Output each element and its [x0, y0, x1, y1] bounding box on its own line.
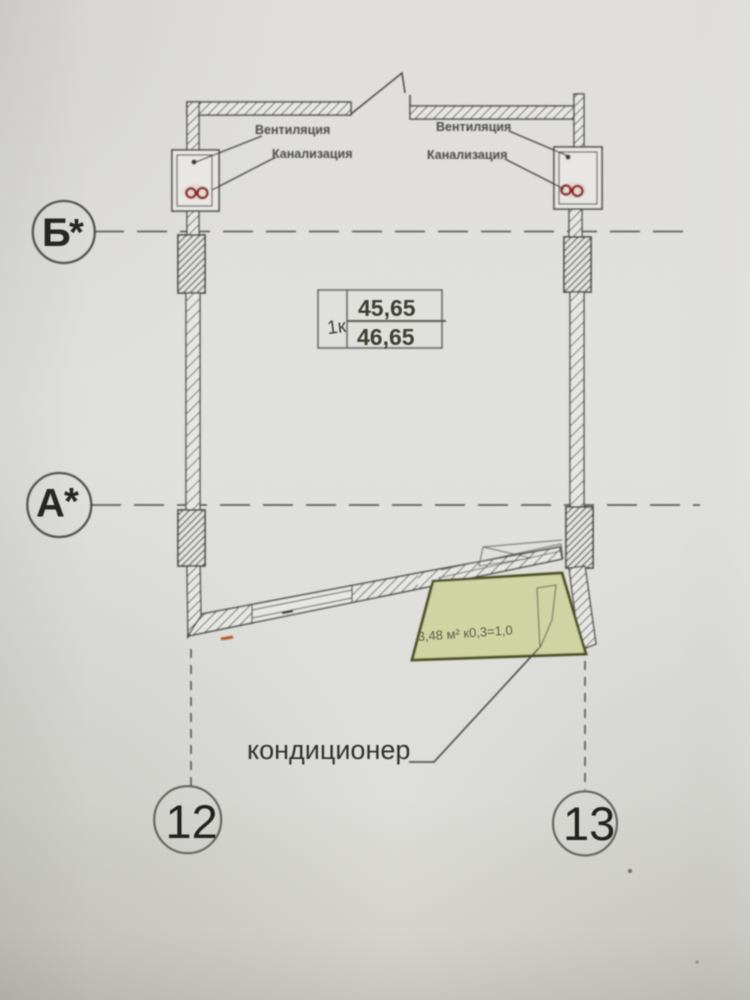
svg-text:1к: 1к: [326, 316, 348, 339]
svg-text:Канализация: Канализация: [272, 147, 353, 161]
svg-text:Вентиляция: Вентиляция: [255, 123, 330, 137]
svg-text:*: *: [64, 481, 79, 523]
svg-text:Б: Б: [42, 211, 71, 255]
svg-text:Канализация: Канализация: [427, 148, 508, 162]
svg-text:46,65: 46,65: [357, 324, 415, 350]
svg-text:А: А: [36, 482, 65, 526]
svg-text:кондиционер: кондиционер: [247, 735, 410, 765]
svg-text:*: *: [69, 212, 84, 254]
svg-text:13: 13: [563, 797, 615, 850]
svg-text:45,65: 45,65: [358, 295, 416, 321]
svg-text:12: 12: [166, 795, 218, 848]
svg-text:Вентиляция: Вентиляция: [436, 120, 511, 134]
